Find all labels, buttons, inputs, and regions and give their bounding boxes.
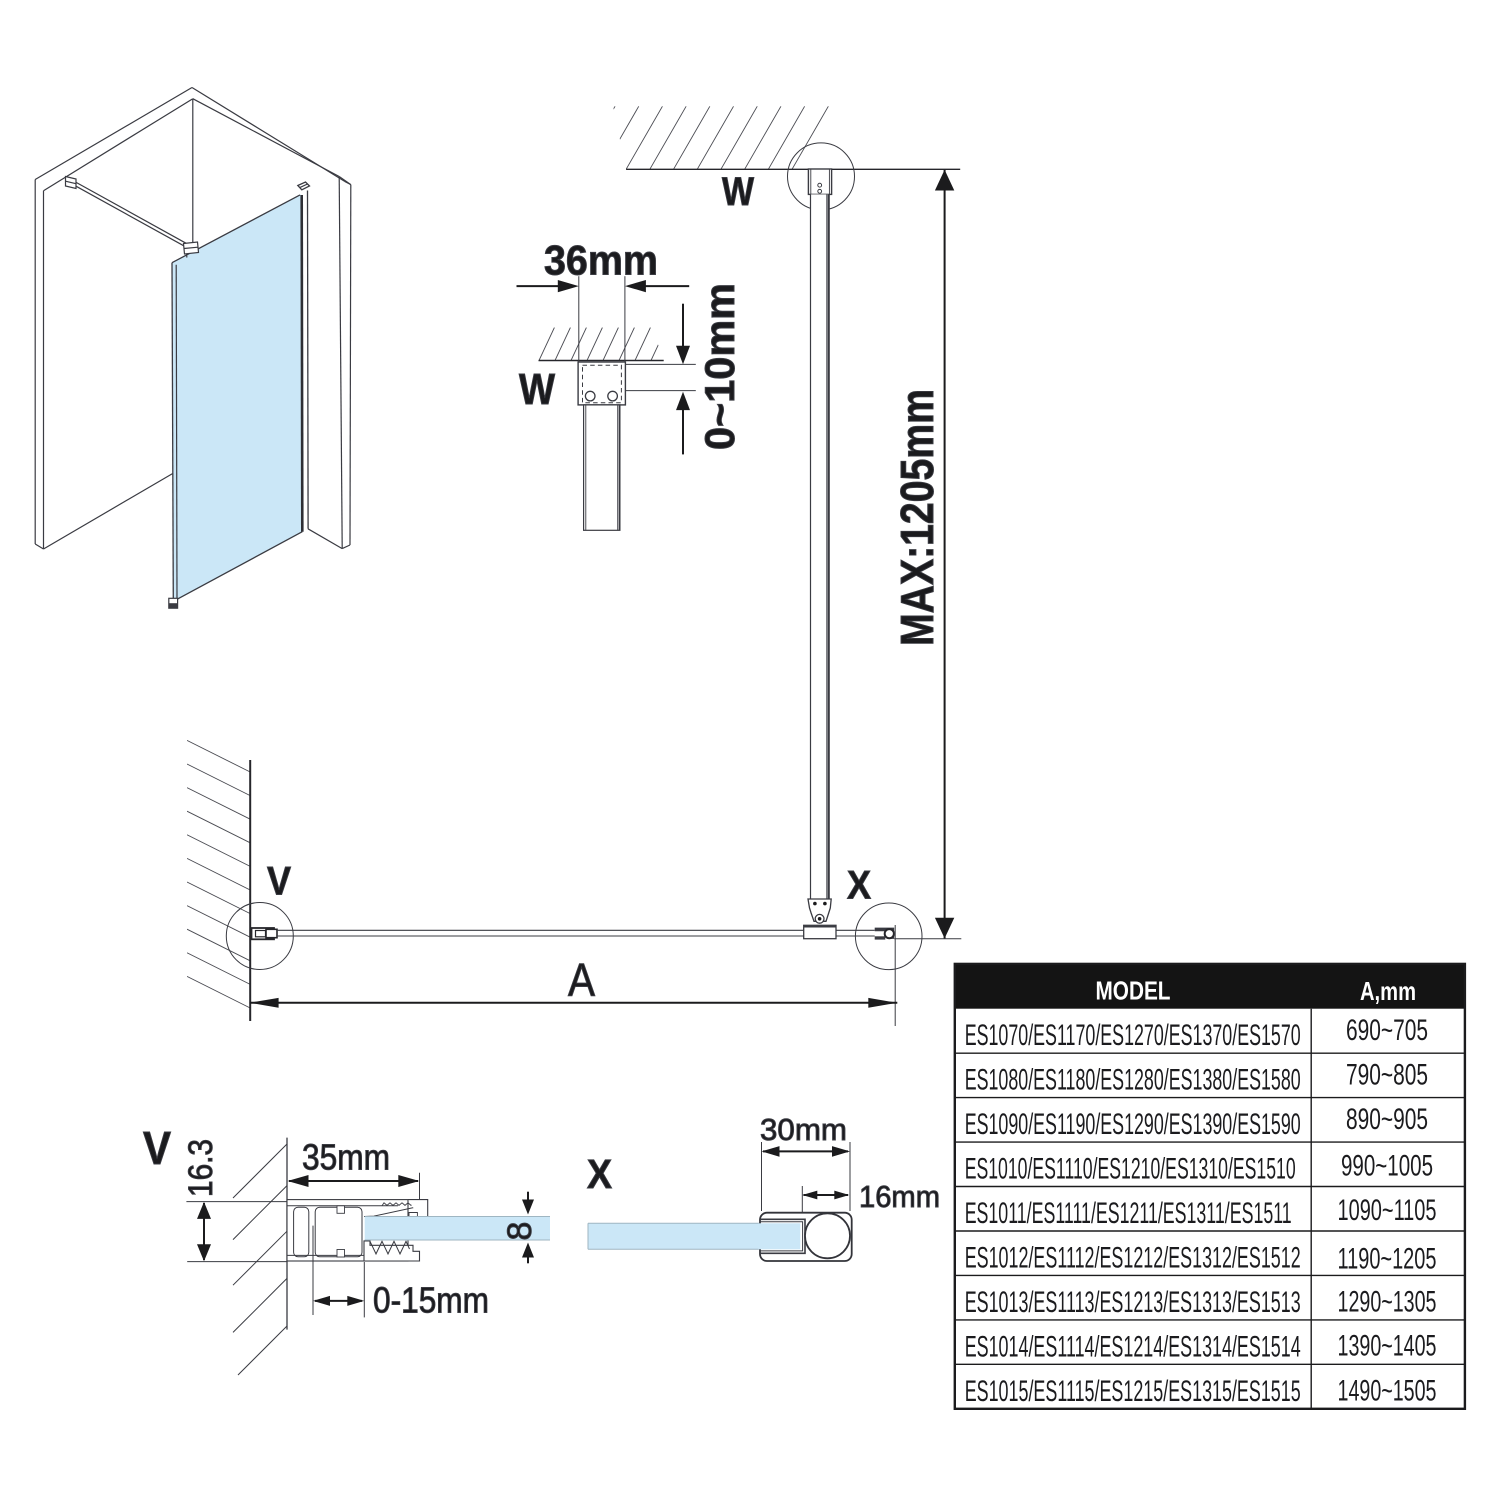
svg-text:A,mm: A,mm: [1360, 976, 1416, 1006]
svg-text:16mm: 16mm: [859, 1179, 940, 1214]
svg-text:W: W: [722, 170, 754, 214]
svg-text:1290~1305: 1290~1305: [1338, 1285, 1437, 1318]
svg-text:X: X: [847, 864, 871, 908]
svg-text:MODEL: MODEL: [1096, 976, 1171, 1006]
svg-text:1490~1505: 1490~1505: [1338, 1374, 1437, 1407]
svg-text:1090~1105: 1090~1105: [1338, 1194, 1437, 1227]
svg-text:ES1070/ES1170/ES1270/ES1370/ES: ES1070/ES1170/ES1270/ES1370/ES1570: [965, 1019, 1301, 1052]
svg-text:X: X: [587, 1151, 612, 1197]
svg-text:W: W: [519, 365, 555, 414]
svg-text:990~1005: 990~1005: [1341, 1150, 1433, 1183]
svg-text:ES1013/ES1113/ES1213/ES1313/ES: ES1013/ES1113/ES1213/ES1313/ES1513: [965, 1286, 1301, 1319]
svg-text:35mm: 35mm: [302, 1137, 390, 1178]
svg-text:ES1080/ES1180/ES1280/ES1380/ES: ES1080/ES1180/ES1280/ES1380/ES1580: [965, 1064, 1301, 1097]
svg-text:ES1014/ES1114/ES1214/ES1314/ES: ES1014/ES1114/ES1214/ES1314/ES1514: [965, 1330, 1301, 1363]
svg-text:ES1011/ES1111/ES1211/ES1311/ES: ES1011/ES1111/ES1211/ES1311/ES1511: [965, 1197, 1292, 1230]
svg-text:ES1010/ES1110/ES1210/ES1310/ES: ES1010/ES1110/ES1210/ES1310/ES1510: [965, 1153, 1296, 1186]
svg-text:1190~1205: 1190~1205: [1338, 1243, 1437, 1276]
svg-text:30mm: 30mm: [760, 1112, 847, 1147]
svg-text:0-15mm: 0-15mm: [373, 1280, 489, 1321]
svg-text:1390~1405: 1390~1405: [1338, 1329, 1437, 1362]
svg-text:0~10mm: 0~10mm: [696, 283, 743, 450]
svg-text:ES1090/ES1190/ES1290/ES1390/ES: ES1090/ES1190/ES1290/ES1390/ES1590: [965, 1108, 1301, 1141]
svg-text:MAX:1205mm: MAX:1205mm: [891, 389, 943, 646]
svg-text:V: V: [143, 1122, 171, 1174]
svg-text:690~705: 690~705: [1346, 1014, 1428, 1047]
svg-text:16.3: 16.3: [182, 1139, 220, 1197]
svg-text:ES1012/ES1112/ES1212/ES1312/ES: ES1012/ES1112/ES1212/ES1312/ES1512: [965, 1242, 1301, 1275]
svg-text:890~905: 890~905: [1346, 1103, 1428, 1136]
svg-text:V: V: [267, 860, 291, 904]
svg-text:ES1015/ES1115/ES1215/ES1315/ES: ES1015/ES1115/ES1215/ES1315/ES1515: [965, 1375, 1301, 1408]
svg-text:790~805: 790~805: [1346, 1059, 1428, 1092]
svg-text:8: 8: [501, 1222, 539, 1241]
svg-text:36mm: 36mm: [544, 237, 658, 284]
svg-text:A: A: [568, 954, 595, 1006]
